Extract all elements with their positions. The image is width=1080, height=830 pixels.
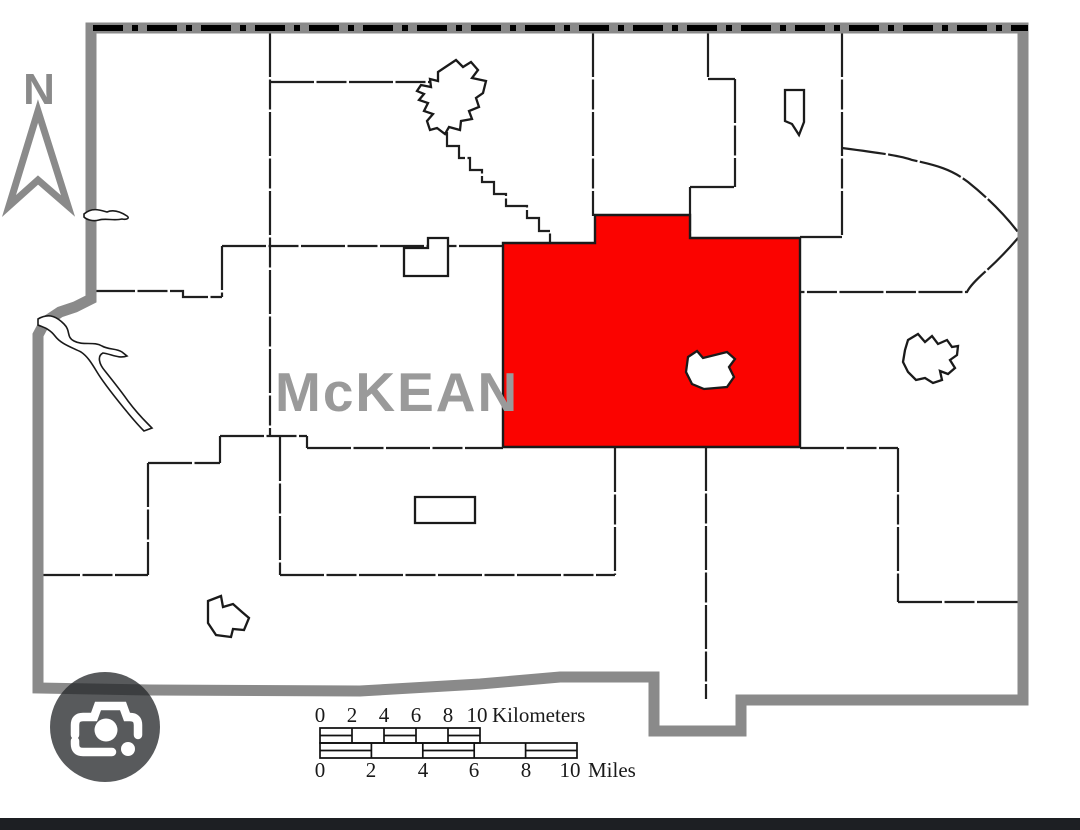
mi-tick: 10 (560, 758, 581, 782)
borough-outline (417, 60, 486, 134)
mi-tick: 0 (315, 758, 326, 782)
borough-outline (208, 596, 249, 637)
borough-hole-in-highlight (686, 351, 735, 389)
km-tick: 0 (315, 703, 326, 727)
county-label: McKEAN (275, 361, 519, 423)
scale-bar: 0 2 4 6 8 10 Kilometers 0 2 4 6 8 10 Mil… (315, 703, 636, 782)
km-tick: 4 (379, 703, 390, 727)
borough-outline (785, 90, 804, 135)
borough-outline (415, 497, 475, 523)
borough-outline (404, 238, 448, 276)
compass: N (9, 65, 68, 206)
km-tick: 6 (411, 703, 422, 727)
km-tick: 8 (443, 703, 454, 727)
km-tick: 10 (467, 703, 488, 727)
stream-outline (84, 210, 128, 221)
reservoir-outline (38, 316, 152, 431)
mi-tick: 4 (418, 758, 429, 782)
km-tick: 2 (347, 703, 358, 727)
borough-outline (903, 334, 958, 383)
mi-tick: 6 (469, 758, 480, 782)
mi-tick: 2 (366, 758, 377, 782)
highlighted-township (503, 215, 800, 447)
county-map: N McKEAN 0 2 4 6 8 10 Kilometers 0 2 (0, 0, 1080, 818)
google-lens-camera-icon (50, 672, 160, 782)
mi-tick: 8 (521, 758, 532, 782)
screenshot-stage: N McKEAN 0 2 4 6 8 10 Kilometers 0 2 (0, 0, 1080, 830)
bottom-bar (0, 818, 1080, 830)
lens-button[interactable] (50, 672, 160, 782)
mi-unit-label: Miles (588, 758, 636, 782)
north-arrow-icon (9, 111, 68, 206)
km-unit-label: Kilometers (492, 703, 585, 727)
